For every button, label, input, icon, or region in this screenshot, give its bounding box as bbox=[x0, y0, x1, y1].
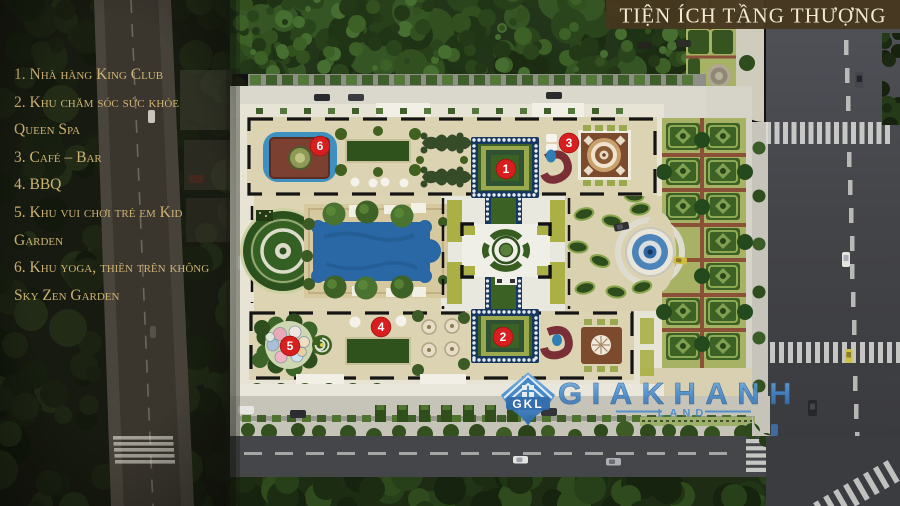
svg-text:6: 6 bbox=[317, 139, 324, 153]
svg-text:2: 2 bbox=[500, 330, 507, 344]
svg-text:LAND: LAND bbox=[658, 408, 709, 420]
svg-text:GKL: GKL bbox=[512, 397, 543, 411]
svg-text:GIAKHANH: GIAKHANH bbox=[558, 376, 801, 411]
svg-text:5: 5 bbox=[287, 339, 294, 353]
svg-text:3: 3 bbox=[566, 136, 573, 150]
svg-text:TIỆN ÍCH TẦNG THƯỢNG: TIỆN ÍCH TẦNG THƯỢNG bbox=[619, 4, 886, 28]
svg-text:1: 1 bbox=[503, 162, 510, 176]
svg-text:4: 4 bbox=[378, 320, 385, 334]
